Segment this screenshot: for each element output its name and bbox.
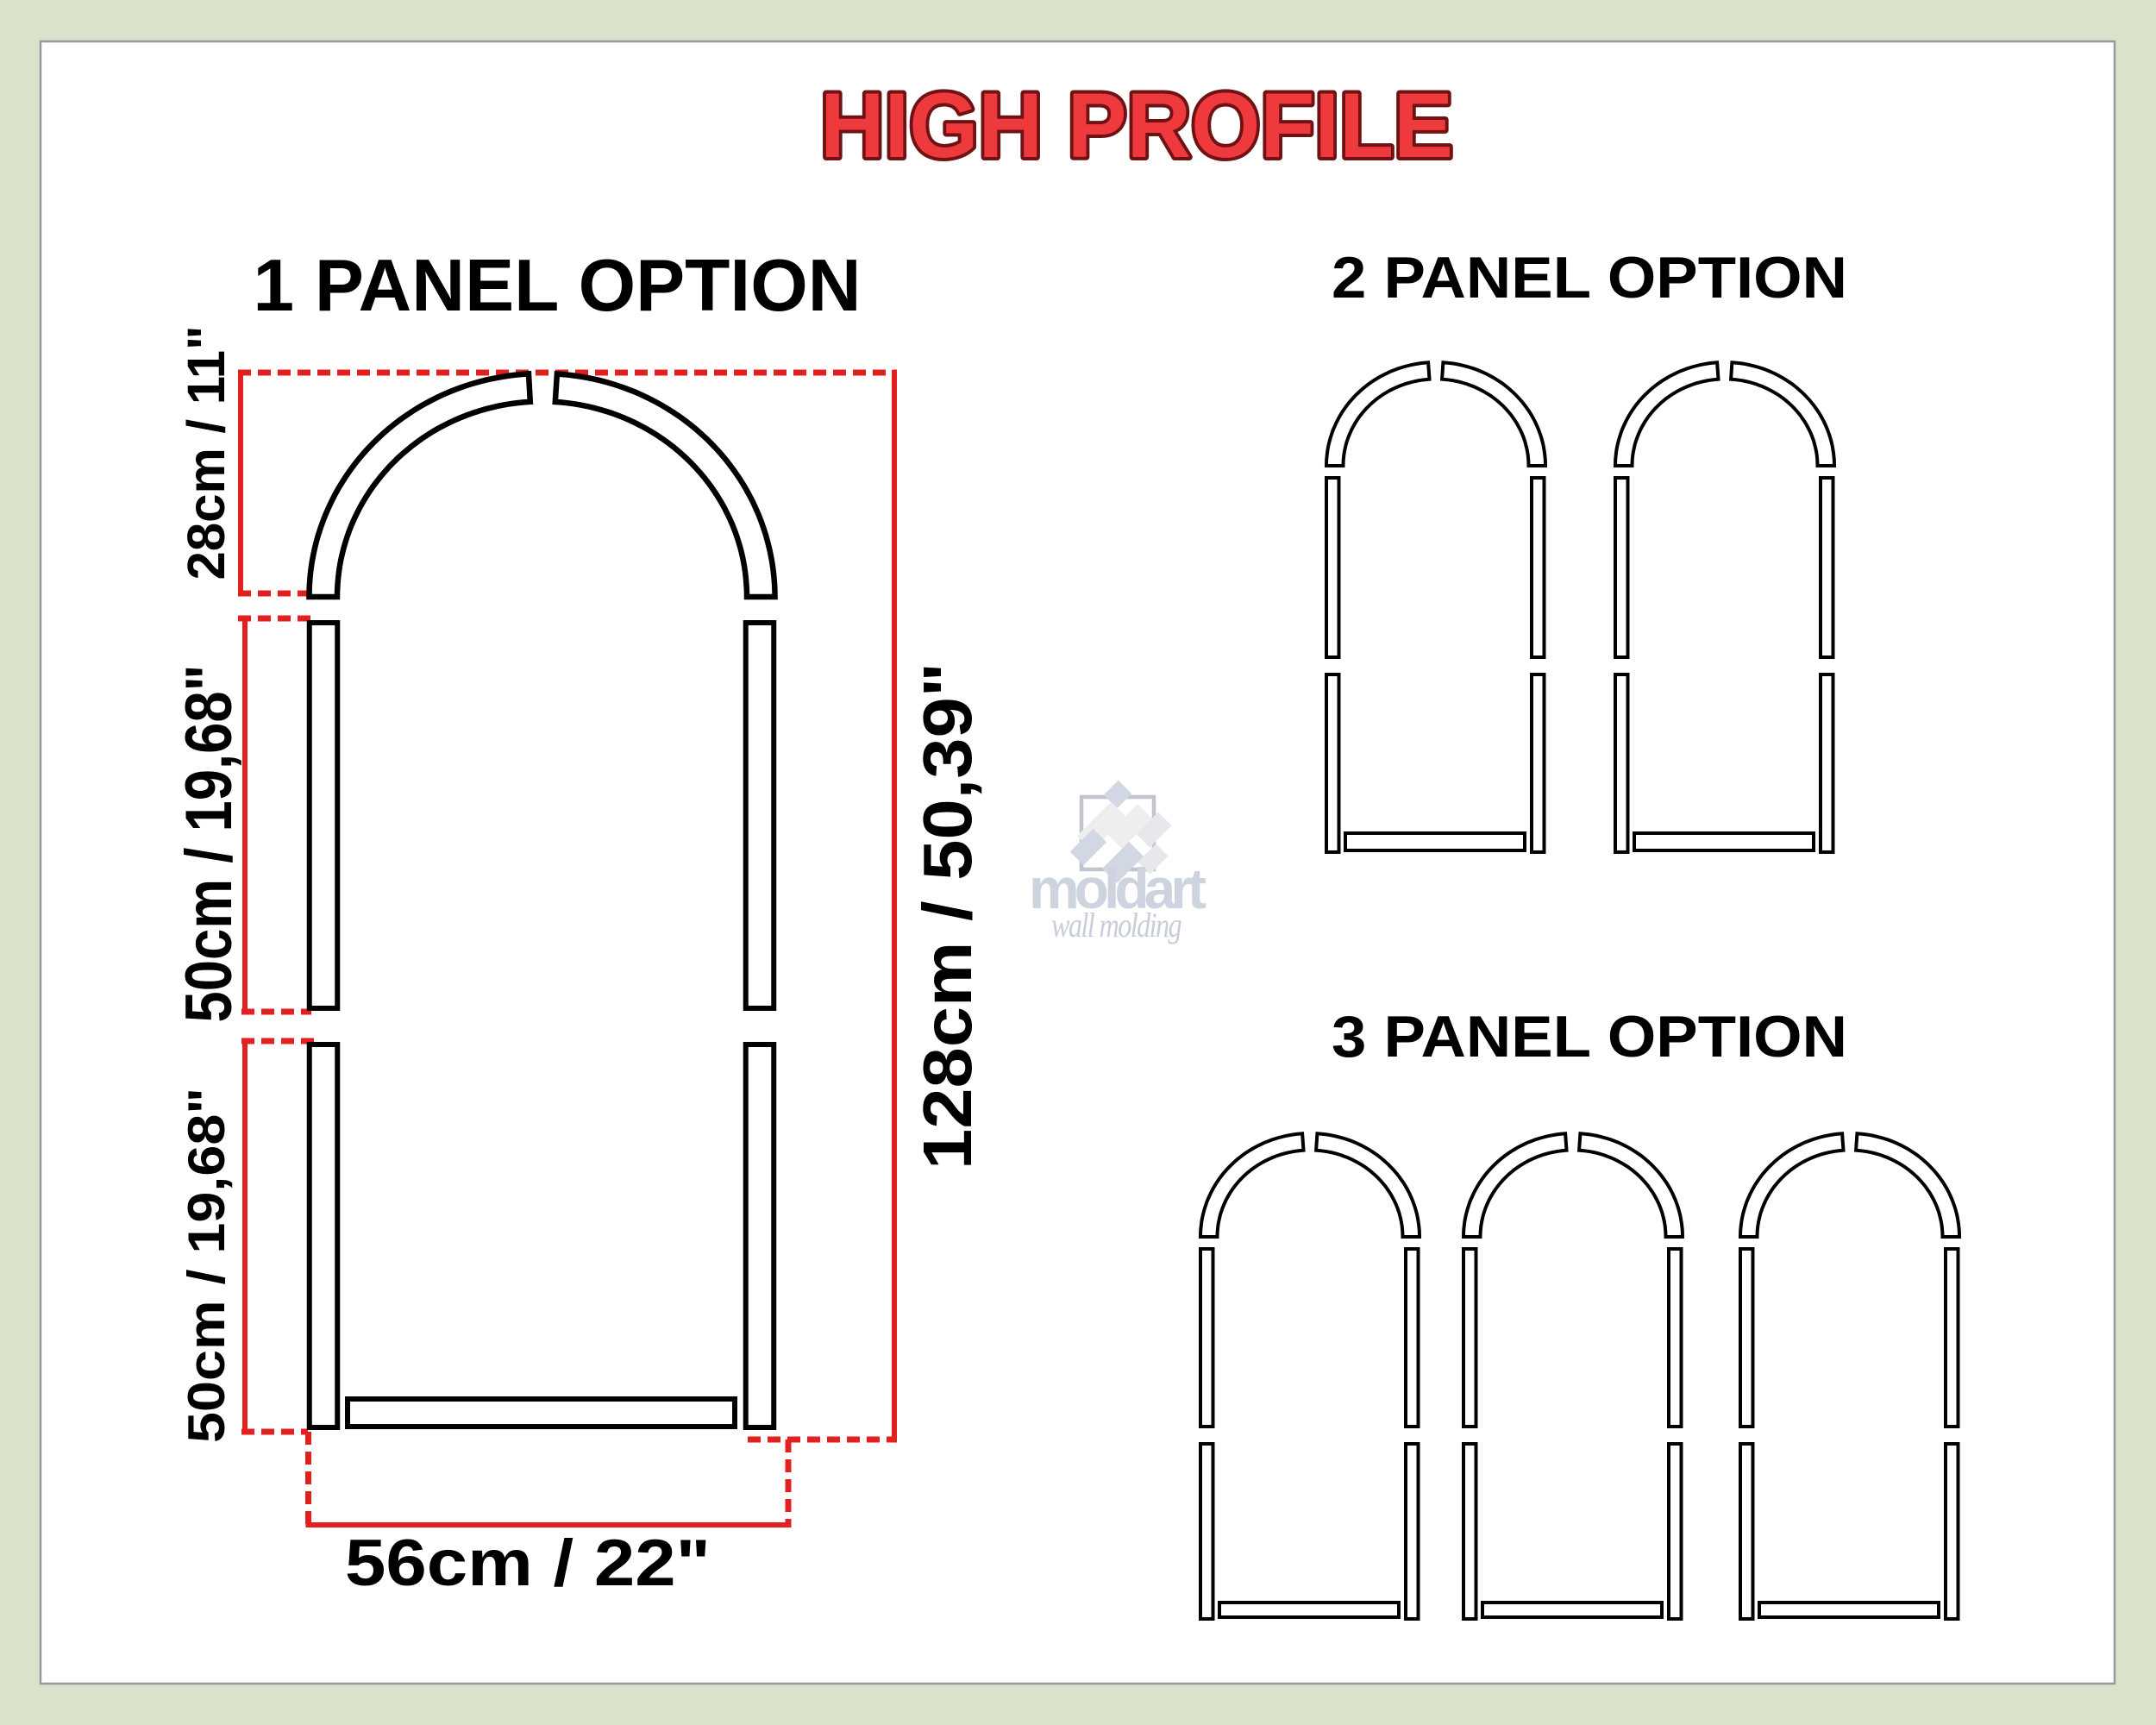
svg-text:HIGH PROFILE: HIGH PROFILE — [820, 73, 1453, 177]
svg-text:3 PANEL OPTION: 3 PANEL OPTION — [1332, 1004, 1847, 1069]
svg-text:28cm / 11": 28cm / 11" — [177, 326, 235, 580]
svg-text:50cm / 19,68": 50cm / 19,68" — [178, 1088, 235, 1443]
svg-text:2 PANEL OPTION: 2 PANEL OPTION — [1332, 245, 1847, 310]
svg-text:56cm / 22": 56cm / 22" — [345, 1527, 711, 1600]
svg-text:128cm / 50,39": 128cm / 50,39" — [909, 662, 986, 1170]
svg-text:50cm / 19,68": 50cm / 19,68" — [172, 665, 246, 1023]
svg-text:1 PANEL OPTION: 1 PANEL OPTION — [254, 245, 862, 327]
svg-text:wall molding: wall molding — [1051, 906, 1181, 944]
